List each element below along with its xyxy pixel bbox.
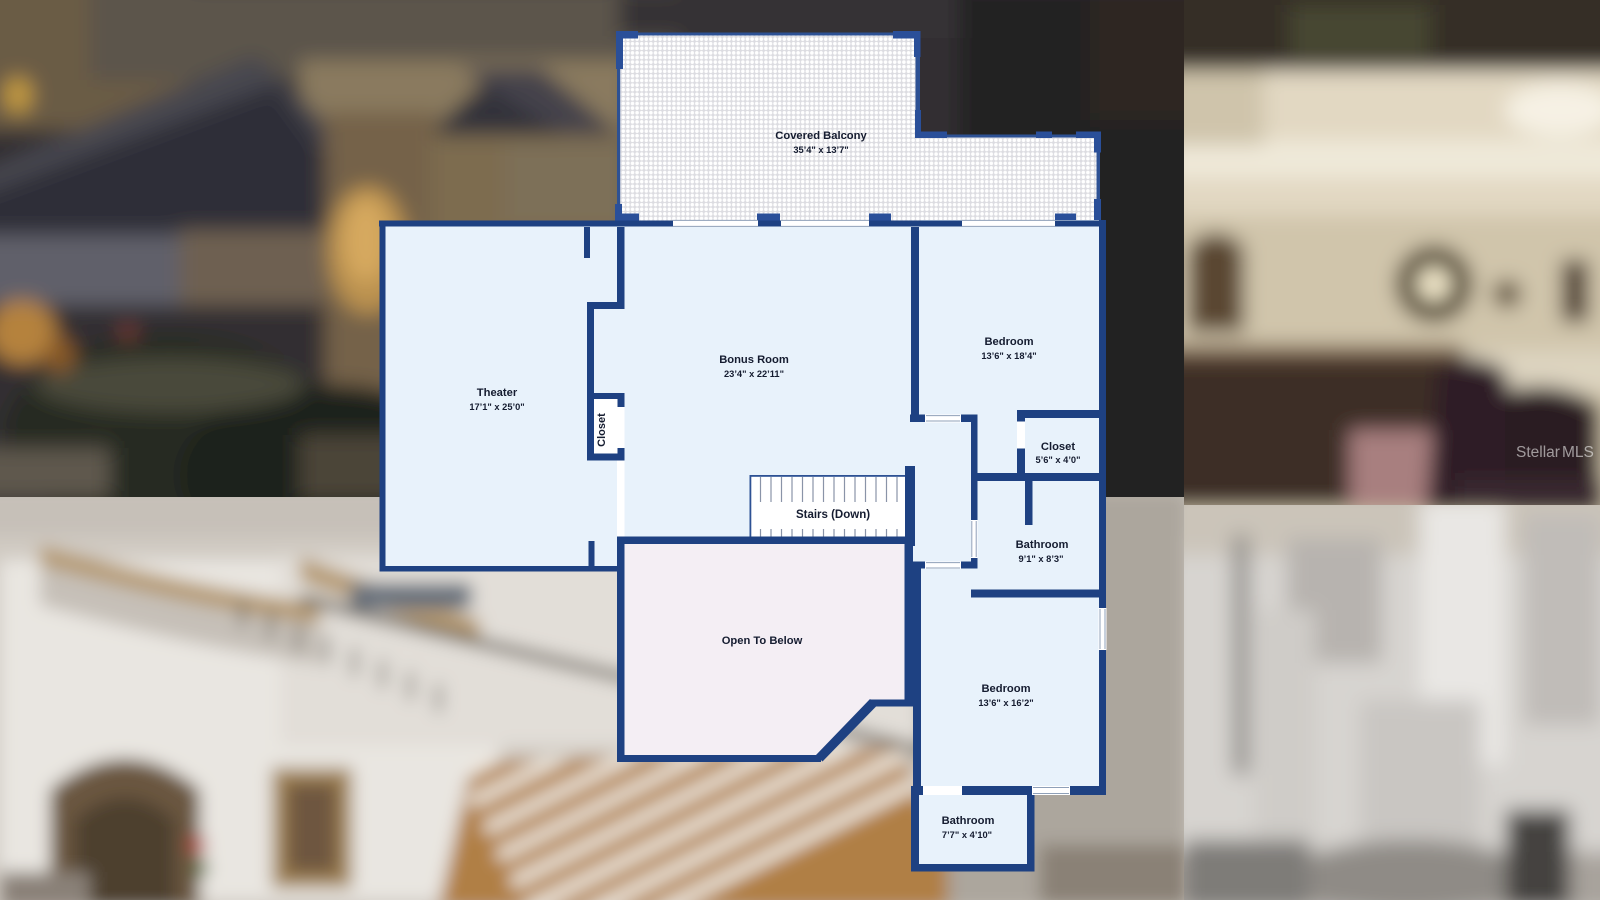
svg-text:7’7" x 4’10": 7’7" x 4’10" bbox=[942, 830, 992, 840]
svg-text:Closet: Closet bbox=[596, 413, 608, 447]
svg-text:Bonus Room: Bonus Room bbox=[719, 354, 789, 366]
svg-text:35’4" x 13’7": 35’4" x 13’7" bbox=[793, 145, 848, 155]
svg-text:5’6" x 4’0": 5’6" x 4’0" bbox=[1035, 455, 1080, 465]
svg-text:Stairs (Down): Stairs (Down) bbox=[796, 509, 870, 521]
svg-text:Bedroom: Bedroom bbox=[984, 336, 1033, 348]
svg-text:Closet: Closet bbox=[1041, 441, 1075, 453]
svg-text:13’6" x 18’4": 13’6" x 18’4" bbox=[981, 351, 1036, 361]
svg-text:Bedroom: Bedroom bbox=[981, 683, 1030, 695]
svg-text:Bathroom: Bathroom bbox=[942, 815, 995, 827]
svg-text:StellarMLS: StellarMLS bbox=[1516, 444, 1594, 461]
svg-text:Theater: Theater bbox=[477, 387, 518, 399]
svg-text:17’1" x 25’0": 17’1" x 25’0" bbox=[469, 402, 524, 412]
svg-text:9’1" x 8’3": 9’1" x 8’3" bbox=[1018, 554, 1063, 564]
svg-text:Bathroom: Bathroom bbox=[1016, 539, 1069, 551]
svg-text:13’6" x 16’2": 13’6" x 16’2" bbox=[978, 698, 1033, 708]
svg-text:23’4" x 22’11": 23’4" x 22’11" bbox=[724, 369, 784, 379]
svg-text:Covered Balcony: Covered Balcony bbox=[775, 130, 867, 142]
svg-text:Open To Below: Open To Below bbox=[722, 635, 803, 647]
